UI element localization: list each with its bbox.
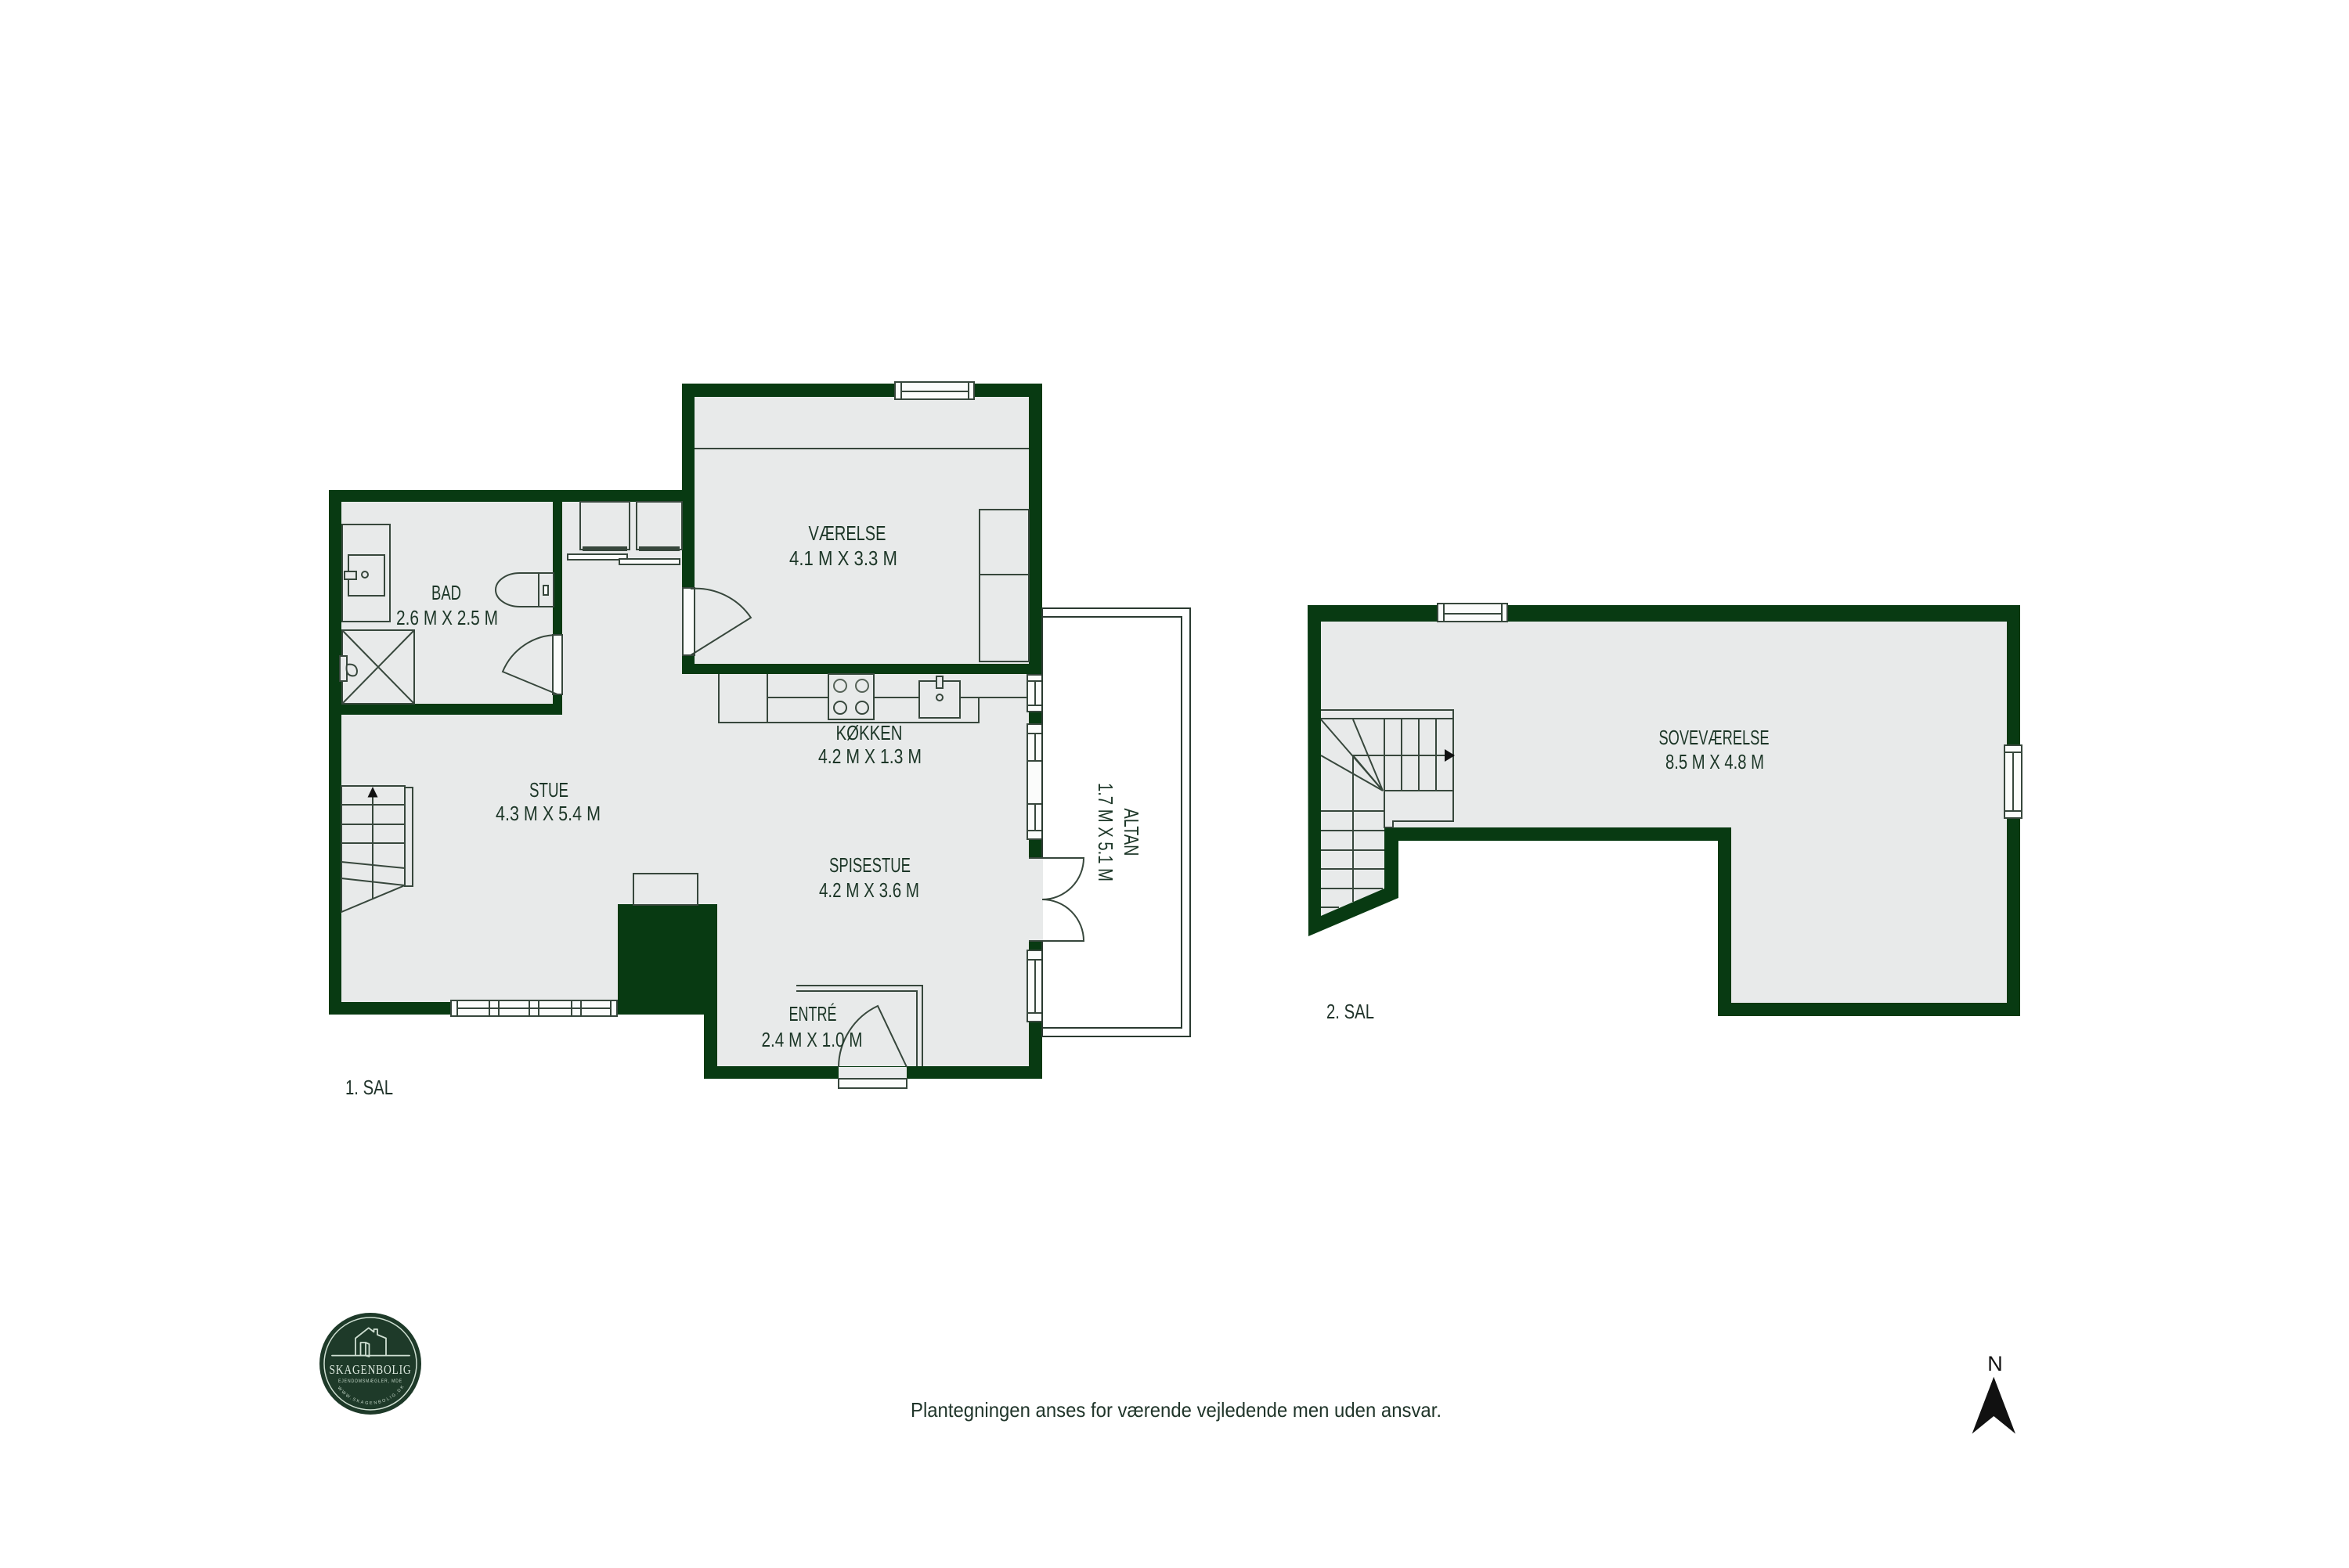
svg-text:VÆRELSE: VÆRELSE (809, 521, 886, 545)
svg-text:BAD: BAD (431, 581, 461, 604)
svg-text:Plantegningen anses for værend: Plantegningen anses for værende vejleden… (911, 1398, 1442, 1422)
svg-text:SOVEVÆRELSE: SOVEVÆRELSE (1659, 726, 1770, 749)
svg-text:4.1 M X 3.3 M: 4.1 M X 3.3 M (789, 546, 897, 570)
svg-text:N: N (1987, 1352, 2003, 1375)
svg-text:8.5 M X 4.8 M: 8.5 M X 4.8 M (1665, 750, 1764, 773)
svg-text:ENTRÉ: ENTRÉ (789, 1002, 837, 1026)
svg-text:ALTAN: ALTAN (1120, 809, 1143, 856)
svg-text:2.4 M X 1.0 M: 2.4 M X 1.0 M (762, 1028, 863, 1051)
svg-text:STUE: STUE (529, 778, 568, 802)
svg-text:1.7 M X 5.1 M: 1.7 M X 5.1 M (1094, 783, 1117, 881)
svg-text:EJENDOMSMÆGLER, MDE: EJENDOMSMÆGLER, MDE (338, 1379, 402, 1384)
svg-text:KØKKEN: KØKKEN (836, 721, 903, 744)
svg-text:SKAGENBOLIG: SKAGENBOLIG (330, 1362, 412, 1377)
svg-text:4.2 M X 3.6 M: 4.2 M X 3.6 M (819, 878, 919, 902)
svg-text:2. SAL: 2. SAL (1326, 1000, 1374, 1023)
svg-text:4.3 M X 5.4 M: 4.3 M X 5.4 M (496, 802, 601, 825)
svg-text:4.2 M X 1.3 M: 4.2 M X 1.3 M (818, 744, 922, 768)
svg-text:2.6 M X 2.5 M: 2.6 M X 2.5 M (396, 606, 498, 629)
svg-text:1. SAL: 1. SAL (345, 1076, 393, 1099)
svg-text:SPISESTUE: SPISESTUE (829, 853, 911, 877)
